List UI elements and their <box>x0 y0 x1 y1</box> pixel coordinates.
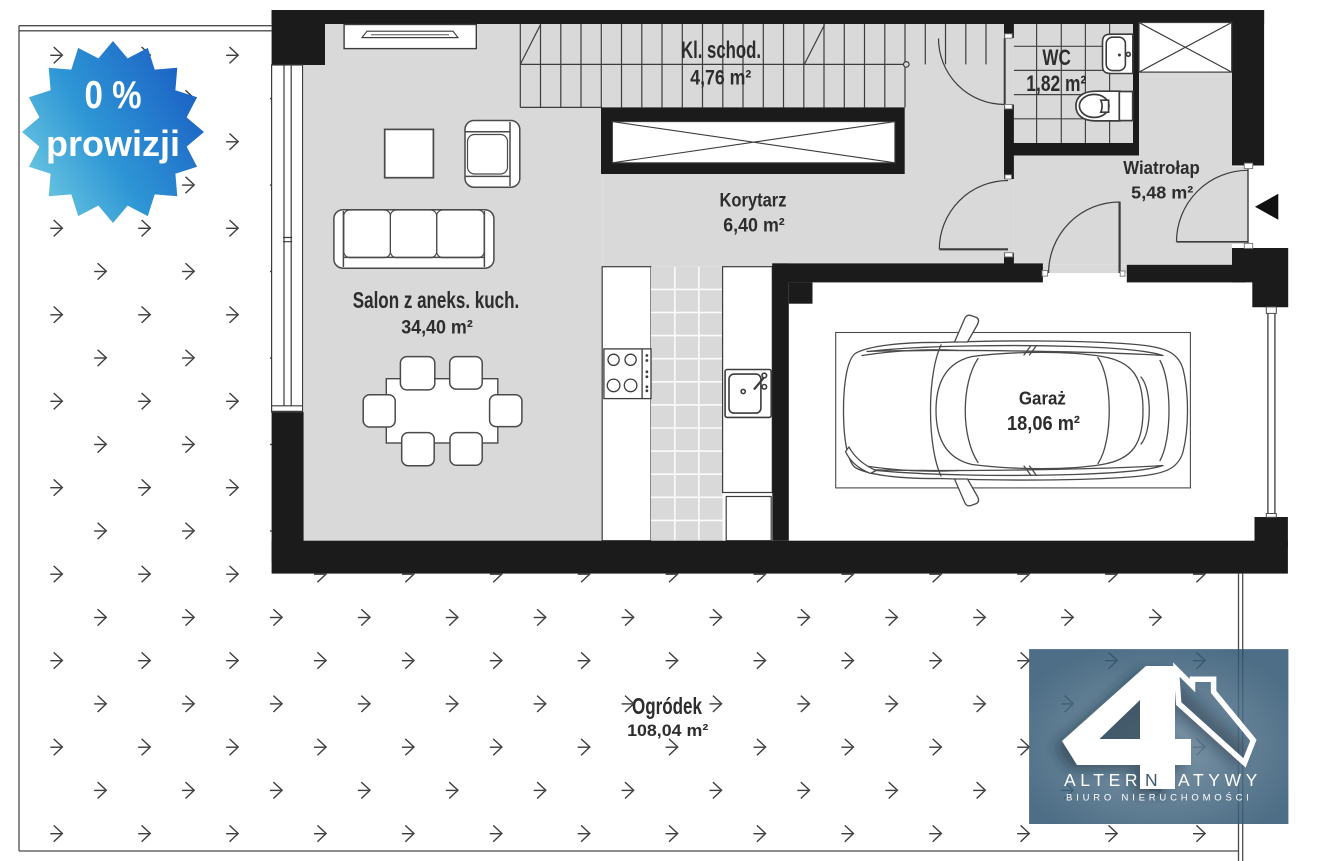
svg-text:1,82 m²: 1,82 m² <box>1026 71 1086 96</box>
svg-text:18,06 m²: 18,06 m² <box>1007 412 1080 435</box>
svg-text:ALTER: ALTER <box>1064 770 1142 790</box>
svg-text:108,04 m²: 108,04 m² <box>627 721 709 740</box>
svg-text:Wiatrołap: Wiatrołap <box>1123 157 1200 178</box>
svg-text:N: N <box>1145 770 1158 790</box>
svg-text:4,76 m²: 4,76 m² <box>690 67 751 90</box>
svg-text:Garaż: Garaż <box>1019 389 1066 409</box>
svg-text:BIURO NIERUCHOMOŚCI: BIURO NIERUCHOMOŚCI <box>1066 792 1253 804</box>
svg-text:6,40 m²: 6,40 m² <box>723 215 785 237</box>
svg-text:0 %: 0 % <box>85 74 142 117</box>
svg-text:prowizji: prowizji <box>46 123 180 164</box>
svg-text:WC: WC <box>1042 45 1071 70</box>
svg-text:Korytarz: Korytarz <box>720 189 787 211</box>
svg-text:34,40 m²: 34,40 m² <box>401 317 473 339</box>
svg-text:Salon z aneks. kuch.: Salon z aneks. kuch. <box>353 287 520 313</box>
svg-text:Ogródek: Ogródek <box>632 693 702 719</box>
svg-text:5,48 m²: 5,48 m² <box>1131 182 1193 202</box>
svg-text:ATYWY: ATYWY <box>1178 770 1262 790</box>
svg-text:Kl. schod.: Kl. schod. <box>681 37 761 64</box>
